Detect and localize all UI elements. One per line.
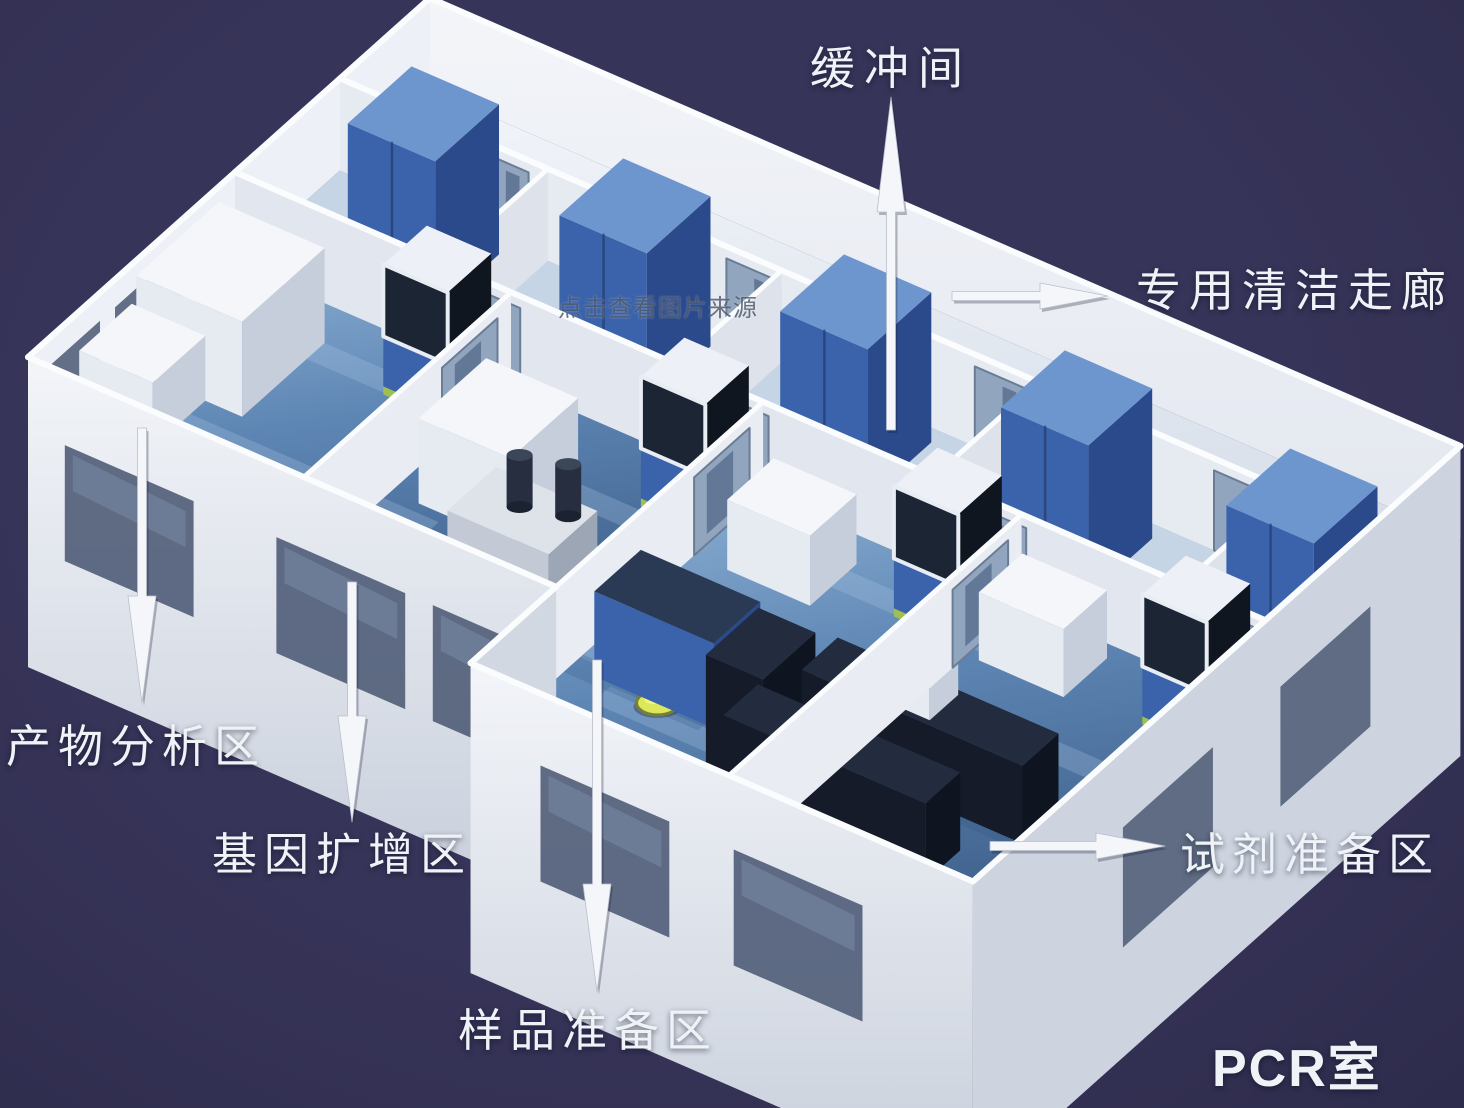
pcr-room-caption: PCR室 — [1212, 1026, 1382, 1101]
sample-preparation-label: 样品准备区 — [458, 994, 718, 1059]
buffer-room-label: 缓冲间 — [810, 32, 972, 97]
clean-corridor-label: 专用清洁走廊 — [1136, 254, 1454, 319]
lab-3d-illustration — [0, 0, 1464, 1108]
gene-amplification-label: 基因扩增区 — [212, 818, 472, 883]
product-analysis-label: 产物分析区 — [6, 710, 266, 775]
watermark-image-source-link[interactable]: 点击查看图片来源 — [558, 288, 758, 323]
reagent-preparation-label: 试剂准备区 — [1180, 818, 1440, 883]
pcr-lab-diagram: 缓冲间 专用清洁走廊 产物分析区 基因扩增区 样品准备区 试剂准备区 PCR室 … — [0, 0, 1464, 1108]
